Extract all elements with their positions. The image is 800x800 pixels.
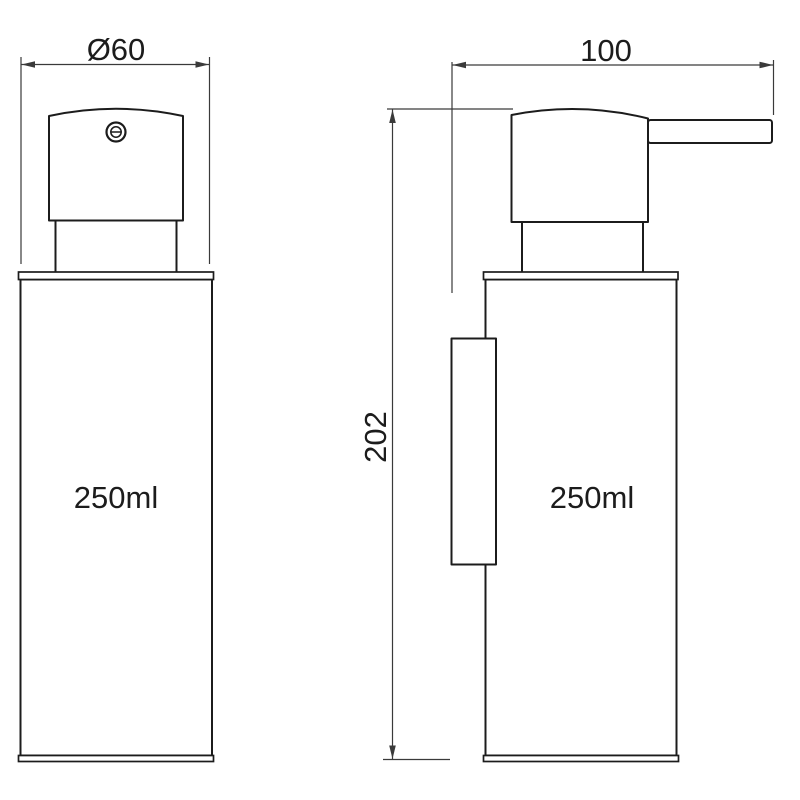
front-pump-cap — [49, 109, 183, 221]
front-bottom-rim — [19, 756, 214, 762]
spout — [648, 120, 772, 143]
side-bottle-body — [486, 280, 677, 756]
side-view — [383, 60, 774, 762]
front-view — [19, 57, 214, 762]
side-pump-neck — [522, 222, 643, 272]
front-bottle-body — [21, 280, 213, 756]
side-volume-label: 250ml — [512, 481, 672, 515]
side-pump-cap — [512, 109, 649, 222]
side-height-label: 202 — [359, 367, 393, 507]
dispenser-line-drawing — [0, 0, 800, 800]
front-top-flange — [19, 272, 214, 280]
technical-drawing-canvas: Ø60 100 202 250ml 250ml — [0, 0, 800, 800]
wall-bracket — [452, 339, 497, 565]
side-bottom-rim — [484, 756, 679, 762]
front-pump-neck — [56, 221, 177, 273]
side-top-flange — [484, 272, 679, 280]
front-diameter-label: Ø60 — [46, 33, 186, 67]
front-volume-label: 250ml — [36, 481, 196, 515]
side-width-label: 100 — [536, 34, 676, 68]
